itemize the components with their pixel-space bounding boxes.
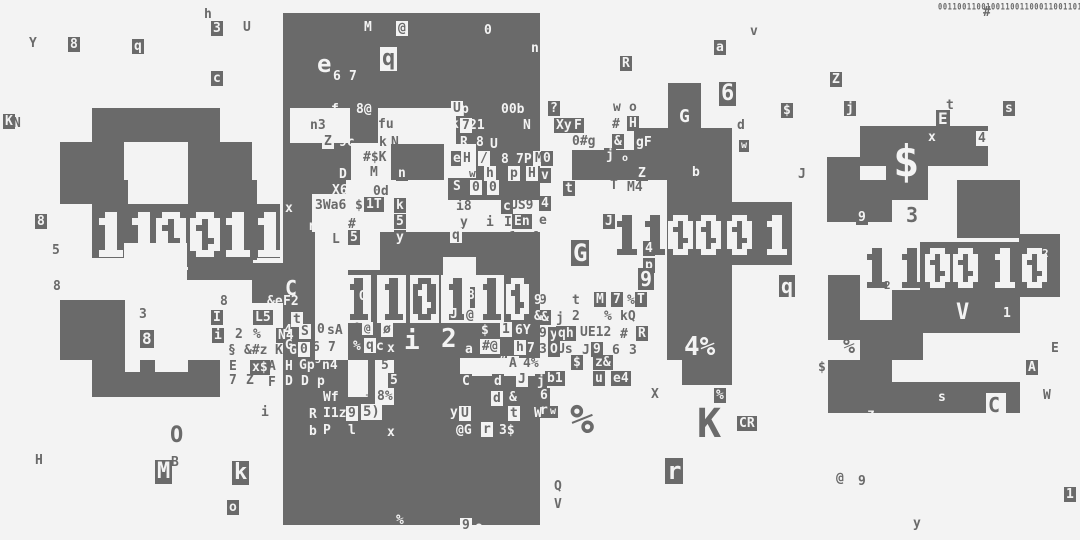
glitch-char: q bbox=[132, 39, 144, 54]
glitch-char: i bbox=[486, 216, 494, 229]
glitch-char: 4% bbox=[523, 357, 539, 370]
glitch-char: M4 bbox=[627, 181, 643, 194]
glitch-char: 00b bbox=[501, 103, 524, 116]
glitch-char: e bbox=[539, 214, 547, 227]
glitch-char: S bbox=[453, 180, 461, 193]
glitch-char: 9 bbox=[638, 268, 654, 290]
glitch-char: 7 bbox=[527, 342, 535, 355]
glitch-char: UE12 bbox=[580, 326, 611, 339]
glitch-char: w bbox=[739, 140, 749, 152]
glitch-char: k bbox=[394, 198, 406, 213]
glitch-char: 8 bbox=[467, 289, 475, 302]
glitch-char: @ bbox=[396, 21, 408, 36]
glitch-char: n4 bbox=[322, 359, 338, 372]
binary-digit-1 bbox=[220, 212, 250, 257]
glitch-char: A bbox=[268, 360, 276, 373]
binary-string: 0011001100100110011000110011010 bbox=[938, 3, 1080, 12]
glitch-char: j bbox=[604, 148, 616, 163]
glitch-char: & bbox=[534, 310, 542, 323]
glitch-char: a bbox=[714, 40, 726, 55]
glitch-char: 9 bbox=[856, 210, 868, 225]
glitch-char: p bbox=[317, 375, 325, 388]
glitch-char: x bbox=[387, 342, 395, 355]
glitch-char: b bbox=[307, 424, 319, 439]
glitch-char: S bbox=[299, 324, 311, 339]
glitch-char: @ bbox=[464, 308, 476, 323]
glitch-char: j bbox=[844, 101, 856, 116]
glitch-char: c bbox=[211, 71, 223, 86]
glitch-char: En bbox=[512, 214, 532, 229]
glitch-char: q bbox=[364, 338, 376, 353]
glitch-char: kQ bbox=[620, 310, 636, 323]
glitch-char: x bbox=[285, 202, 293, 215]
glitch-char: 3 bbox=[629, 344, 637, 357]
glitch-char: 9 bbox=[460, 518, 472, 533]
glitch-char: W bbox=[1043, 389, 1051, 402]
glitch-char: 0 bbox=[541, 151, 553, 166]
glitch-char: 6 bbox=[719, 82, 736, 106]
glitch-char: J bbox=[798, 168, 806, 181]
glitch-char: p bbox=[461, 103, 469, 116]
glitch-char: K bbox=[697, 404, 721, 444]
glitch-char: ? bbox=[548, 101, 560, 116]
glitch-char: ~o bbox=[348, 321, 360, 331]
glitch-char: H bbox=[627, 116, 639, 131]
glitch-char: 4 bbox=[643, 241, 655, 256]
glitch-char: $ bbox=[355, 199, 363, 212]
glitch-char: e4 bbox=[611, 371, 631, 386]
glitch-char: F bbox=[572, 118, 584, 133]
glitch-char: M bbox=[364, 21, 372, 34]
glitch-char: b1 bbox=[545, 371, 565, 386]
glitch-block bbox=[187, 258, 253, 280]
glitch-char: $ bbox=[481, 324, 489, 337]
glitch-char: 6 bbox=[312, 341, 320, 354]
glitch-char: r bbox=[481, 422, 493, 437]
glitch-char: d bbox=[492, 374, 504, 389]
glitch-char: D bbox=[285, 375, 293, 388]
glitch-char: # bbox=[612, 118, 620, 131]
glitch-char: V bbox=[956, 302, 969, 324]
glitch-char: Xy bbox=[554, 118, 574, 133]
glitch-char: z bbox=[867, 408, 875, 421]
glitch-char: X bbox=[651, 388, 659, 401]
glitch-char: % bbox=[604, 310, 612, 323]
glitch-char: R bbox=[307, 407, 319, 422]
glitch-char: q bbox=[779, 275, 795, 297]
glitch-char: 7 bbox=[328, 341, 336, 354]
glitch-char: 1T bbox=[364, 197, 384, 212]
glitch-char: n bbox=[531, 42, 539, 55]
glitch-char: 1 bbox=[1001, 306, 1013, 321]
glitch-char: & bbox=[509, 391, 517, 404]
glitch-char: l bbox=[348, 424, 356, 437]
glitch-char: L5 bbox=[253, 310, 273, 325]
glitch-char: n3 bbox=[308, 118, 328, 133]
glitch-char: O bbox=[170, 425, 183, 447]
glitch-char: Z bbox=[636, 166, 648, 181]
glitch-char: 3 bbox=[539, 343, 547, 356]
glitch-char: u bbox=[593, 371, 605, 386]
glitch-char: R bbox=[636, 326, 648, 341]
glitch-char: Gp bbox=[299, 359, 315, 372]
glitch-char: A bbox=[507, 356, 519, 371]
glitch-char: 3 bbox=[906, 205, 918, 225]
glitch-char: 8 bbox=[501, 153, 509, 166]
glitch-char: G bbox=[285, 339, 293, 352]
glitch-char: H bbox=[461, 151, 473, 166]
glitch-char: Q bbox=[359, 290, 367, 303]
glitch-char: 8% bbox=[377, 390, 393, 403]
glitch-char: C bbox=[460, 374, 472, 389]
glitch-char: 6 bbox=[538, 388, 550, 403]
binary-digit-1 bbox=[762, 215, 787, 254]
glitch-char: 6 bbox=[612, 344, 620, 357]
glitch-char: F bbox=[268, 376, 276, 389]
glitch-char: P bbox=[323, 424, 331, 437]
glitch-char: % bbox=[353, 340, 361, 353]
glitch-block bbox=[827, 157, 860, 180]
glitch-char: $ bbox=[781, 103, 793, 118]
glitch-char: 7 bbox=[349, 70, 357, 83]
glitch-char: 5 bbox=[315, 356, 321, 366]
binary-digit-1 bbox=[478, 278, 501, 320]
glitch-char: fu bbox=[378, 118, 394, 131]
glitch-char: t bbox=[572, 294, 580, 307]
glitch-char: A bbox=[1026, 360, 1038, 375]
glitch-char: &e bbox=[267, 295, 283, 308]
glitch-char: s bbox=[1003, 101, 1015, 116]
glitch-char: i8 bbox=[456, 200, 472, 213]
glitch-char: U bbox=[459, 406, 471, 421]
glitch-char: J bbox=[516, 372, 528, 387]
glitch-char: R bbox=[620, 56, 632, 71]
binary-digit-0 bbox=[925, 248, 950, 287]
glitch-char: M bbox=[370, 166, 378, 179]
glitch-char: r bbox=[665, 458, 683, 484]
binary-digit-1 bbox=[380, 278, 403, 320]
glitch-char: 2 bbox=[1042, 248, 1049, 259]
glitch-char: D bbox=[339, 168, 347, 181]
glitch-char: t bbox=[563, 181, 575, 196]
glitch-char: 6 bbox=[333, 70, 341, 83]
glitch-char: 9 bbox=[346, 406, 358, 421]
glitch-char: y bbox=[394, 230, 406, 245]
glitch-char: U bbox=[490, 138, 498, 151]
glitch-char: qh bbox=[556, 326, 576, 341]
glitch-char: $ bbox=[893, 140, 920, 184]
binary-digit-1 bbox=[897, 248, 922, 287]
glitch-char: 3$ bbox=[499, 424, 515, 437]
glitch-char: z& bbox=[593, 355, 613, 370]
glitch-char: Wf bbox=[323, 391, 339, 404]
glitch-char: Q bbox=[554, 480, 562, 493]
glitch-char: k bbox=[900, 342, 908, 355]
binary-digit-0 bbox=[696, 215, 721, 254]
glitch-hole bbox=[155, 360, 188, 372]
glitch-char: y bbox=[913, 517, 921, 530]
glitch-char: d bbox=[735, 118, 747, 133]
glitch-char: i bbox=[261, 406, 269, 419]
glitch-char: 2 bbox=[572, 310, 580, 323]
glitch-char: 2 bbox=[884, 280, 891, 291]
glitch-char: h bbox=[204, 8, 212, 21]
glitch-char: 7 bbox=[611, 292, 623, 307]
glitch-char: 4 bbox=[284, 324, 292, 337]
glitch-char: 5 bbox=[348, 230, 360, 245]
glitch-char: 5 bbox=[394, 214, 406, 229]
glitch-char: sA bbox=[327, 324, 343, 337]
glitch-char: CR bbox=[737, 416, 757, 431]
binary-digit-1 bbox=[990, 248, 1015, 287]
glitch-char: 8 bbox=[68, 37, 80, 52]
glitch-char: 2 bbox=[441, 326, 457, 352]
glitch-char: T bbox=[635, 292, 647, 307]
glitch-char: Z bbox=[830, 72, 842, 87]
glitch-char: 0 bbox=[484, 24, 492, 37]
glitch-char: X6 bbox=[332, 184, 348, 197]
glitch-char: 4 bbox=[539, 196, 551, 211]
glitch-char: U bbox=[243, 21, 251, 34]
glitch-char: $ bbox=[818, 361, 826, 374]
glitch-char: 5) bbox=[361, 404, 382, 420]
glitch-char: v bbox=[750, 25, 758, 38]
glitch-char: x bbox=[387, 426, 395, 439]
glitch-char: s bbox=[938, 391, 946, 404]
glitch-char: b bbox=[692, 166, 700, 179]
glitch-overlay bbox=[124, 243, 187, 265]
glitch-char: M bbox=[155, 460, 172, 484]
glitch-char: I bbox=[211, 310, 223, 325]
glitch-char: % bbox=[253, 328, 261, 341]
glitch-char: 0#g bbox=[572, 135, 595, 148]
glitch-char: v bbox=[539, 168, 551, 183]
glitch-char: o bbox=[475, 521, 483, 534]
glitch-char: 5 bbox=[381, 359, 389, 372]
glitch-char: c bbox=[376, 340, 384, 353]
glitch-char: 5 bbox=[388, 373, 400, 388]
glitch-char: 1 bbox=[1064, 487, 1076, 502]
glitch-char: 9 bbox=[534, 294, 542, 307]
glitch-char: o bbox=[629, 101, 637, 114]
glitch-char: I bbox=[504, 216, 512, 229]
glitch-char: 7 bbox=[229, 374, 237, 387]
glitch-char: 0 bbox=[487, 180, 499, 195]
glitch-char: E bbox=[936, 110, 950, 128]
glitch-char: & bbox=[532, 231, 540, 244]
glitch-char: I1z bbox=[323, 407, 346, 420]
glitch-block bbox=[92, 108, 220, 142]
glitch-char: i bbox=[212, 328, 224, 343]
glitch-char: o bbox=[227, 500, 239, 515]
glitch-char: ww bbox=[469, 168, 482, 179]
glitch-char: % bbox=[396, 514, 404, 527]
glitch-char: $ bbox=[571, 355, 583, 370]
glitch-char: W bbox=[534, 407, 542, 420]
glitch-char: 8 bbox=[140, 330, 154, 348]
glitch-char: #$K bbox=[363, 151, 386, 164]
glitch-char: 3Wa6 bbox=[315, 199, 346, 212]
glitch-char: § bbox=[228, 344, 236, 357]
glitch-char: E bbox=[1051, 342, 1059, 355]
binary-digit-0 bbox=[190, 212, 220, 257]
glitch-char: w bbox=[548, 406, 558, 418]
glitch-char: 8 bbox=[220, 295, 228, 308]
glitch-char: 8 bbox=[35, 214, 47, 229]
glitch-char: 2 bbox=[235, 328, 243, 341]
glitch-char: #@ bbox=[480, 339, 500, 354]
glitch-char: 0 bbox=[298, 342, 310, 357]
glitch-char: @ bbox=[836, 472, 844, 485]
glitch-char: 1 bbox=[509, 231, 517, 244]
glitch-char: z bbox=[365, 393, 371, 403]
glitch-char: 3 bbox=[139, 308, 147, 321]
glitch-char: R bbox=[460, 136, 468, 149]
glitch-char: y bbox=[450, 406, 458, 419]
glitch-char: a bbox=[465, 343, 473, 356]
glitch-char: J bbox=[603, 214, 615, 229]
glitch-hole bbox=[125, 360, 140, 372]
glitch-char: C bbox=[986, 394, 1002, 416]
glitch-char: Z bbox=[246, 374, 254, 387]
glitch-char: H bbox=[285, 360, 293, 373]
glitch-char: i bbox=[404, 328, 420, 354]
binary-digit-0 bbox=[668, 215, 693, 254]
glitch-char: V bbox=[554, 498, 562, 511]
glitch-char: p bbox=[508, 166, 520, 181]
glitch-char: 8 bbox=[476, 136, 484, 149]
glitch-char: n bbox=[396, 166, 408, 181]
glitch-char: k bbox=[379, 136, 387, 149]
glitch-char: N bbox=[13, 117, 21, 130]
glitch-char: Z bbox=[322, 134, 334, 149]
glitch-block bbox=[860, 320, 923, 360]
glitch-char: d bbox=[491, 391, 503, 406]
glitch-char: H bbox=[526, 166, 538, 181]
glitch-char: w bbox=[613, 101, 621, 114]
glitch-char: x bbox=[928, 131, 936, 144]
glitch-char: T bbox=[610, 179, 618, 192]
glitch-char: J bbox=[450, 308, 458, 321]
glitch-char: % bbox=[627, 294, 635, 307]
glitch-char: # bbox=[498, 356, 506, 369]
glitch-char: N bbox=[391, 136, 399, 149]
glitch-char: 1 bbox=[500, 322, 512, 337]
glitch-char: 0 bbox=[470, 180, 482, 195]
glitch-char: k bbox=[451, 118, 459, 131]
glitch-char: & bbox=[612, 134, 624, 149]
glitch-char: L bbox=[332, 233, 340, 246]
glitch-char: B bbox=[339, 119, 347, 132]
glitch-char: h bbox=[484, 166, 496, 181]
binary-digit-1 bbox=[612, 215, 637, 254]
glitch-char: 8 bbox=[53, 280, 61, 293]
glitch-char: q bbox=[380, 47, 397, 71]
glitch-char: t bbox=[508, 406, 520, 421]
glitch-char: N bbox=[523, 119, 531, 132]
glitch-char: 21 bbox=[469, 119, 485, 132]
glitch-block bbox=[60, 300, 125, 360]
glitch-char: k bbox=[232, 461, 249, 485]
glitch-char: / bbox=[478, 151, 490, 166]
glitch-char: @ bbox=[362, 322, 373, 335]
glitch-char: &#z bbox=[244, 344, 267, 357]
glitch-char: K bbox=[275, 344, 283, 357]
glitch-char: H bbox=[35, 454, 43, 467]
glitch-char: q bbox=[450, 228, 462, 243]
binary-digit-0 bbox=[413, 278, 436, 320]
glitch-char: r bbox=[308, 220, 316, 233]
glitch-char: F2 bbox=[283, 295, 299, 308]
glitch-char: Y bbox=[29, 37, 37, 50]
glitch-char: 4% bbox=[684, 334, 715, 360]
glitch-char: % bbox=[843, 336, 855, 356]
glitch-char: j bbox=[556, 312, 564, 325]
glitch-char: 4 bbox=[976, 131, 988, 146]
glitch-block bbox=[828, 360, 892, 413]
glitch-char: j bbox=[535, 374, 547, 389]
glitch-char: D bbox=[301, 375, 309, 388]
glitch-char: G bbox=[571, 240, 589, 266]
glitch-char: gF bbox=[636, 136, 652, 149]
glitch-char: f bbox=[331, 103, 339, 116]
glitch-char: e bbox=[317, 52, 331, 76]
binary-digit-0 bbox=[727, 215, 752, 254]
glitch-char: @G bbox=[456, 424, 472, 437]
glitch-collage: h3UY8qcKN85838HOBMkoiEx$A7ZF$AWszC@91yZj… bbox=[0, 0, 1080, 540]
glitch-char: % bbox=[570, 400, 594, 440]
glitch-char: 9 bbox=[858, 475, 866, 488]
glitch-char: 5 bbox=[52, 244, 60, 257]
glitch-char: J bbox=[582, 344, 590, 357]
glitch-char: 0 bbox=[315, 322, 327, 337]
glitch-char: 9 bbox=[539, 327, 547, 340]
glitch-char: h bbox=[514, 340, 526, 355]
glitch-char: US9 bbox=[510, 199, 533, 212]
binary-digit-1 bbox=[252, 212, 282, 257]
binary-digit-0 bbox=[953, 248, 978, 287]
binary-digit-1 bbox=[93, 212, 123, 257]
glitch-block bbox=[828, 275, 860, 340]
glitch-char: o bbox=[620, 153, 630, 165]
glitch-char: 3 bbox=[211, 21, 223, 36]
glitch-block bbox=[957, 180, 1020, 238]
glitch-char: 9c bbox=[339, 136, 355, 149]
glitch-char: G bbox=[679, 108, 690, 126]
glitch-char: # bbox=[620, 328, 628, 341]
glitch-char: 7P bbox=[516, 153, 532, 166]
glitch-char: ø bbox=[381, 322, 393, 337]
glitch-char: M bbox=[594, 292, 606, 307]
glitch-char: E bbox=[229, 360, 237, 373]
glitch-overlay bbox=[125, 267, 188, 270]
glitch-char: 6Y bbox=[515, 324, 531, 337]
glitch-block bbox=[92, 180, 128, 206]
glitch-char: 8@ bbox=[356, 103, 372, 116]
binary-digit-0 bbox=[506, 278, 529, 320]
